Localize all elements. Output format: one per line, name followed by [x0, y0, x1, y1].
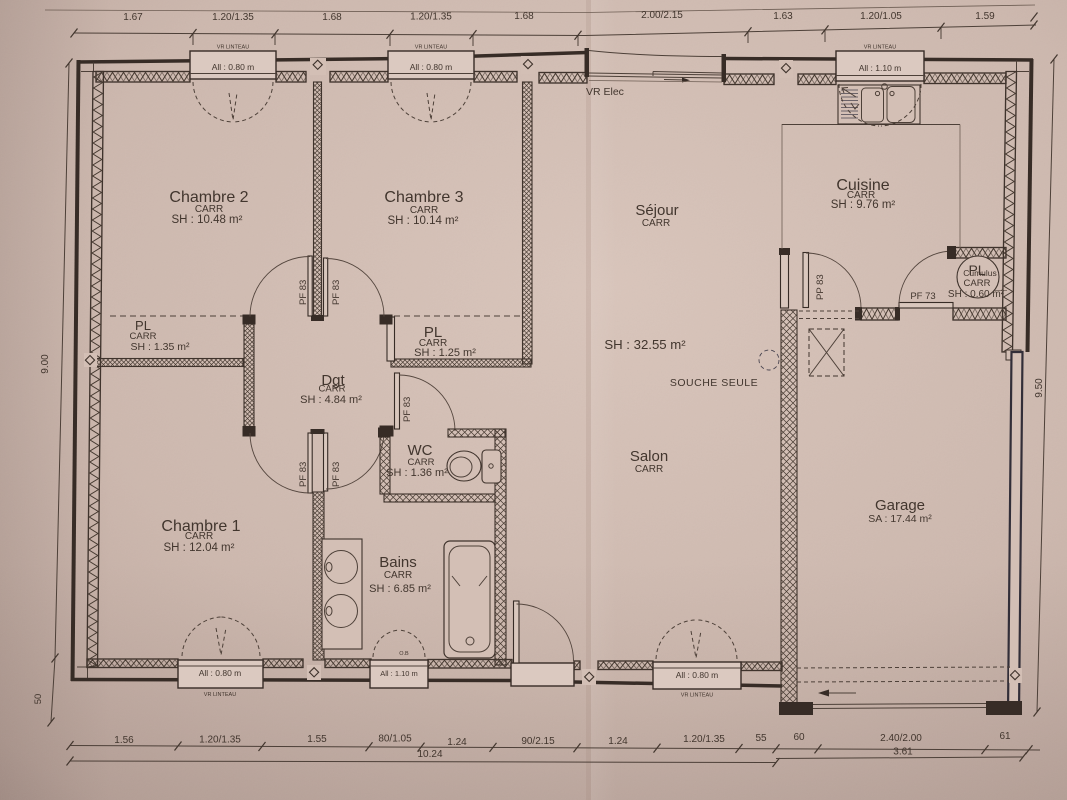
- svg-text:SH : 6.85 m²: SH : 6.85 m²: [369, 583, 431, 595]
- svg-text:CARR: CARR: [635, 464, 663, 475]
- svg-text:SH : 1.25 m²: SH : 1.25 m²: [414, 347, 476, 359]
- svg-text:SH : 10.14 m²: SH : 10.14 m²: [388, 215, 459, 227]
- svg-text:55: 55: [755, 733, 767, 744]
- svg-text:All : 0.80 m: All : 0.80 m: [410, 62, 453, 72]
- svg-text:1.55: 1.55: [307, 734, 327, 745]
- svg-text:50: 50: [33, 694, 44, 705]
- svg-text:PF 83: PF 83: [331, 462, 342, 487]
- svg-text:PF 83: PF 83: [298, 462, 309, 487]
- svg-text:10.24: 10.24: [417, 749, 442, 760]
- svg-text:1.68: 1.68: [514, 11, 534, 22]
- svg-text:Garage: Garage: [875, 497, 925, 514]
- svg-text:1.24: 1.24: [608, 736, 628, 747]
- svg-text:80/1.05: 80/1.05: [378, 734, 412, 745]
- svg-text:3.61: 3.61: [893, 747, 913, 758]
- svg-text:2.40/2.00: 2.40/2.00: [880, 733, 922, 744]
- svg-text:61: 61: [999, 731, 1011, 742]
- svg-text:PF 83: PF 83: [298, 280, 309, 305]
- svg-text:SH : 12.04 m²: SH : 12.04 m²: [164, 542, 235, 554]
- svg-text:CARR: CARR: [319, 384, 346, 395]
- svg-text:1.20/1.35: 1.20/1.35: [199, 735, 241, 746]
- svg-text:VR LINTEAU: VR LINTEAU: [681, 693, 713, 699]
- svg-text:CARR: CARR: [384, 570, 412, 581]
- svg-text:VR LINTEAU: VR LINTEAU: [864, 45, 896, 51]
- svg-text:9.00: 9.00: [40, 354, 51, 374]
- svg-text:1.20/1.35: 1.20/1.35: [683, 734, 725, 745]
- svg-text:Séjour: Séjour: [635, 202, 678, 219]
- svg-text:SH : 9.76 m²: SH : 9.76 m²: [831, 199, 896, 211]
- svg-text:SH : 4.84 m²: SH : 4.84 m²: [300, 394, 362, 406]
- svg-text:1.20/1.35: 1.20/1.35: [410, 12, 452, 23]
- svg-text:CARR: CARR: [964, 278, 991, 289]
- svg-text:All : 0.80 m: All : 0.80 m: [212, 62, 255, 72]
- svg-text:2.00/2.15: 2.00/2.15: [641, 10, 683, 21]
- svg-text:Salon: Salon: [630, 448, 668, 465]
- svg-text:1.24: 1.24: [447, 737, 467, 748]
- svg-text:60: 60: [793, 732, 805, 743]
- svg-text:PF 73: PF 73: [910, 291, 935, 302]
- svg-text:SH : 0.60 m²: SH : 0.60 m²: [948, 289, 1005, 300]
- svg-text:1.56: 1.56: [114, 735, 134, 746]
- svg-text:CARR: CARR: [185, 531, 213, 542]
- svg-text:1.20/1.35: 1.20/1.35: [212, 12, 254, 23]
- svg-text:Chambre 3: Chambre 3: [384, 189, 463, 206]
- svg-text:PF 83: PF 83: [402, 397, 413, 422]
- svg-text:SA : 17.44 m²: SA : 17.44 m²: [868, 513, 932, 525]
- svg-text:1.20/1.05: 1.20/1.05: [860, 11, 902, 22]
- svg-text:PP 83: PP 83: [815, 274, 826, 300]
- svg-text:VR LINTEAU: VR LINTEAU: [204, 692, 236, 698]
- svg-text:90/2.15: 90/2.15: [521, 736, 555, 747]
- svg-text:1.63: 1.63: [773, 11, 793, 22]
- svg-text:VR LINTEAU: VR LINTEAU: [217, 45, 249, 51]
- svg-text:All : 1.10 m: All : 1.10 m: [380, 669, 418, 678]
- svg-text:9.50: 9.50: [1034, 378, 1045, 398]
- svg-text:1.67: 1.67: [123, 12, 143, 23]
- svg-text:CARR: CARR: [642, 218, 670, 229]
- svg-text:SH : 1.36 m²: SH : 1.36 m²: [386, 467, 448, 479]
- svg-text:VR LINTEAU: VR LINTEAU: [415, 45, 447, 51]
- svg-text:All : 0.80 m: All : 0.80 m: [676, 670, 719, 680]
- svg-text:All : 1.10 m: All : 1.10 m: [859, 63, 902, 73]
- svg-text:SH : 1.35 m²: SH : 1.35 m²: [131, 341, 190, 353]
- svg-text:SOUCHE SEULE: SOUCHE SEULE: [670, 377, 758, 389]
- svg-text:SH : 10.48 m²: SH : 10.48 m²: [172, 214, 243, 226]
- svg-text:O.B: O.B: [399, 651, 409, 657]
- svg-text:1.59: 1.59: [975, 11, 995, 22]
- svg-text:1.68: 1.68: [322, 12, 342, 23]
- svg-text:Cumulus: Cumulus: [963, 268, 997, 278]
- svg-text:All : 0.80 m: All : 0.80 m: [199, 668, 242, 678]
- svg-text:SH : 32.55 m²: SH : 32.55 m²: [604, 337, 686, 352]
- svg-text:PF 83: PF 83: [331, 280, 342, 305]
- svg-text:Bains: Bains: [379, 554, 417, 571]
- svg-text:VR Elec: VR Elec: [586, 86, 624, 98]
